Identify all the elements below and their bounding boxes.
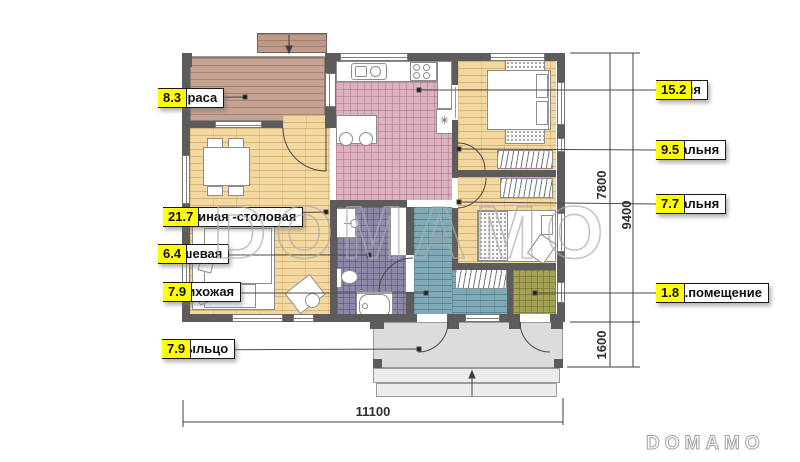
room-area: 1.8 — [656, 283, 685, 303]
dimension-porch-depth: 1600 — [594, 325, 610, 365]
terrace-door-arc — [283, 128, 326, 171]
room-area: 15.2 — [656, 80, 692, 100]
watermark-corner: DOMAMO — [646, 434, 765, 453]
terrace-arrow-down-icon — [286, 46, 292, 53]
room-area: 7.7 — [656, 194, 685, 214]
floor-plan: ✳ — [0, 0, 800, 462]
room-area: 8.3 — [158, 88, 187, 108]
watermark-center: DOMAMO — [213, 196, 612, 270]
bedroom1-door-arc — [458, 143, 485, 170]
room-area: 7.9 — [163, 282, 192, 302]
porch-arrow-up-icon — [469, 371, 475, 378]
dimension-total-width: 11100 — [345, 404, 401, 419]
dimension-total-depth: 9400 — [619, 195, 635, 235]
room-area: 6.4 — [158, 244, 187, 264]
porch-door-arc-1 — [418, 322, 448, 352]
porch-door-arc-2 — [520, 322, 550, 352]
room-area: 21.7 — [163, 207, 199, 227]
room-area: 7.9 — [162, 339, 191, 359]
room-area: 9.5 — [656, 140, 685, 160]
